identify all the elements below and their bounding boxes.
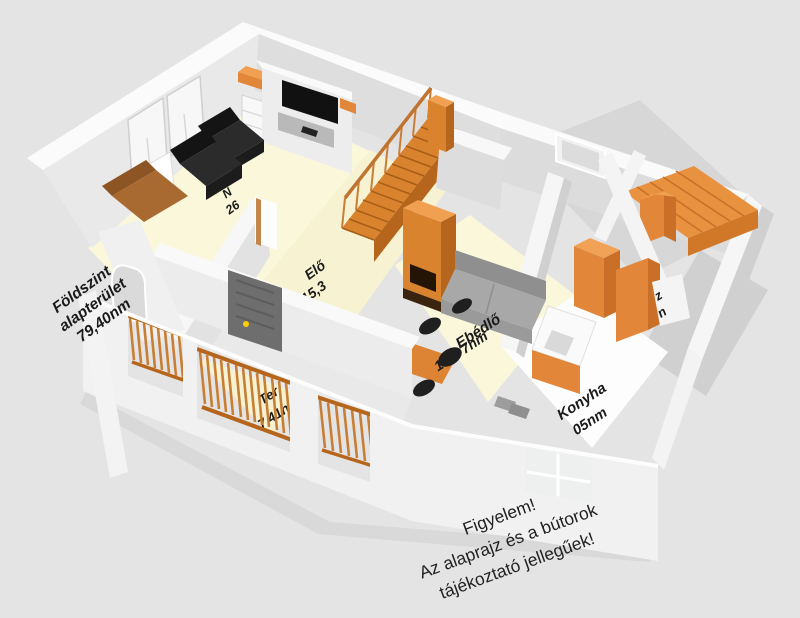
pantry-cabinet-front — [616, 258, 648, 342]
door-knob — [243, 321, 249, 327]
newel-side — [446, 102, 454, 152]
fridge-front — [574, 246, 604, 318]
floorplan-3d-view[interactable]: Ebédlő 1 7nm Konyha 05nm z n N 26 Elő 15… — [0, 0, 800, 618]
cabinet-right-top-side — [664, 191, 676, 242]
newel-front — [428, 100, 446, 152]
stairs-newel — [428, 95, 454, 152]
interior-door-leaf-edge — [256, 198, 261, 246]
floorplan-screenshot: Ebédlő 1 7nm Konyha 05nm z n N 26 Elő 15… — [0, 0, 800, 618]
